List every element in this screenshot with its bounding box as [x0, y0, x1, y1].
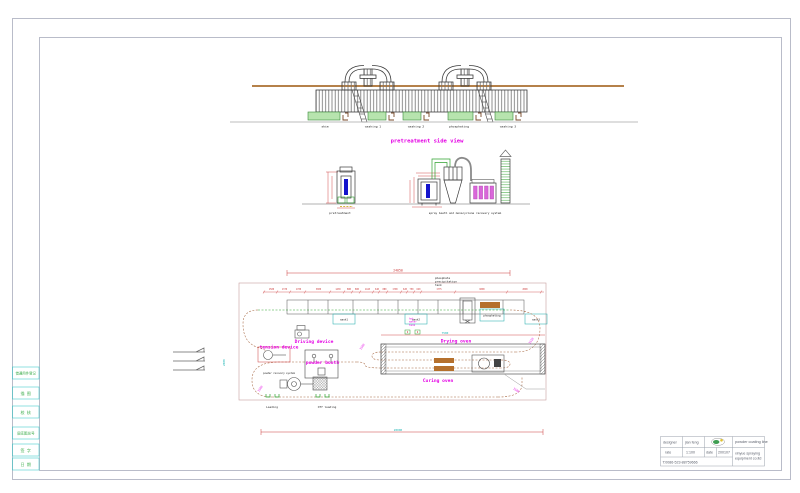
svg-text:phosphating: phosphating [483, 314, 501, 318]
phone-number: T:0086-523-88759666 [663, 461, 698, 465]
section-arrows [173, 348, 205, 370]
station-label: washing 3 [500, 125, 516, 129]
drying-oven-label: Drying oven [441, 339, 472, 345]
recovery-cyclone [280, 378, 313, 391]
title-block: designer jian feng rate 1:100 date 20010… [660, 436, 766, 467]
sidebar-label: 旧底图总号 [17, 431, 35, 436]
front-views: pretreatment [298, 147, 534, 221]
product-name: powder coating line [735, 440, 768, 444]
sidebar-label: 描 图 [20, 390, 30, 396]
left-dim-value: 2000 [222, 359, 226, 366]
spray-booth-label: spray booth and monocyclone recovery sys… [429, 211, 502, 215]
company-logo [712, 438, 725, 445]
svg-text:1500: 1500 [269, 288, 275, 291]
pretreatment-front-label: pretreatment [329, 211, 351, 215]
cyclone-outlet-duct [455, 158, 471, 181]
driving-device-label: Driving device [295, 339, 334, 345]
pretreatment-tunnel [316, 90, 527, 112]
designer-value: jian feng [684, 440, 699, 444]
designer-label: designer [663, 440, 678, 444]
svg-text:3000: 3000 [316, 288, 322, 291]
date-label: date [706, 451, 713, 455]
company-name-line2: equipment co.ltd [735, 457, 761, 461]
svg-text:1775: 1775 [436, 288, 442, 291]
plan-view: 24050 15001370 17003000 1430880 8001443 … [168, 264, 568, 442]
sidebar-label: 签 字 [20, 447, 30, 453]
hanger-marks [266, 394, 329, 397]
svg-text:1700: 1700 [392, 288, 398, 291]
svg-text:1370: 1370 [282, 288, 288, 291]
sidebar-label: 借通用件登记 [16, 371, 37, 376]
drying-oven-drawing [381, 344, 545, 374]
powder-recovery-label: powder recovery system [263, 372, 295, 375]
phosphate-note: phosphate precipitation tank [435, 276, 457, 287]
svg-text:800: 800 [355, 288, 360, 291]
tension-device-label: tension device [260, 345, 299, 351]
station-label: skim [321, 125, 328, 129]
svg-text:6000: 6000 [479, 288, 485, 291]
company-name-line1: xinyue spraying [735, 452, 760, 456]
svg-text:1430: 1430 [335, 288, 341, 291]
svg-text:640: 640 [375, 288, 380, 291]
drawing-sheet: { "colors": { "magenta": "#e400e4", "dim… [0, 0, 800, 493]
hot-water-pump-unit [460, 298, 475, 323]
off-loading-label: Off loading [318, 405, 337, 409]
station-label: washing 1 [365, 125, 381, 129]
svg-text:wash1: wash1 [340, 318, 348, 322]
sidebar-label: 日 期 [20, 461, 30, 467]
svg-text:2090: 2090 [522, 288, 528, 291]
chain-dim-values: 15001370 17003000 1430880 8001443 640880… [269, 288, 528, 291]
driving-device-drawing [295, 326, 309, 339]
svg-text:tank: tank [435, 283, 442, 287]
oven-dim-value: 7500 [442, 331, 449, 335]
oven-lower-edge [504, 374, 545, 389]
process-tanks [308, 112, 513, 120]
sidebar-label: 校 核 [20, 409, 30, 415]
revision-sidebar: 借通用件登记 描 图 校 核 旧底图总号 签 字 日 期 [12, 360, 40, 470]
rotated-dim: 1500 [512, 387, 520, 394]
cyclone [444, 167, 462, 203]
oven-drive-unit [472, 355, 504, 372]
after-filter [470, 180, 496, 204]
rotated-dim: 1500 [359, 343, 366, 351]
powder-booth-label: powder booth [306, 360, 339, 366]
booth-opening [426, 184, 430, 198]
scale-value: 1:100 [686, 451, 695, 455]
rotated-dim: 1510 [528, 337, 535, 345]
svg-text:750: 750 [410, 288, 415, 291]
loading-label: Loading [266, 405, 278, 409]
svg-text:880: 880 [383, 288, 388, 291]
pretreatment-side-view: skim washing 1 washing 2 phosphating was… [228, 56, 640, 148]
exhaust-stack [500, 150, 511, 203]
side-view-title: pretreatment side view [391, 139, 465, 145]
station-label: washing 2 [408, 125, 424, 129]
plan-tanks [333, 309, 547, 324]
svg-text:1700: 1700 [296, 288, 302, 291]
station-label: phosphating [449, 125, 469, 129]
roof-exhaust-unit [342, 66, 394, 91]
bottom-dim-value: 20000 [394, 428, 403, 432]
date-value: 200107 [718, 451, 730, 455]
valve-symbols [405, 330, 420, 334]
overall-dim-value: 24050 [393, 269, 403, 273]
phosphating-heater-bar [480, 302, 500, 308]
curing-heater-bar [434, 366, 454, 371]
svg-text:620: 620 [403, 288, 408, 291]
curing-oven-label: Curing oven [423, 378, 454, 384]
svg-text:1443: 1443 [365, 288, 371, 291]
spray-booth-recovery-front-view: spray booth and monocyclone recovery sys… [410, 150, 511, 215]
recovery-filter [313, 377, 327, 390]
svg-text:880: 880 [347, 288, 352, 291]
plan-tank-labels: wash1 wash2 phosphating wash3 [340, 314, 540, 322]
suction-duct [432, 159, 450, 179]
svg-text:tank: tank [409, 323, 416, 327]
rotated-dim: 1500 [257, 385, 264, 393]
pretreatment-front-view: pretreatment [326, 167, 355, 215]
svg-text:620: 620 [417, 288, 422, 291]
curing-heater-bar [434, 358, 454, 363]
svg-text:wash3: wash3 [532, 318, 540, 322]
scale-label: rate [665, 451, 671, 455]
plant-boundary [239, 283, 546, 400]
booth-opening [344, 179, 348, 195]
